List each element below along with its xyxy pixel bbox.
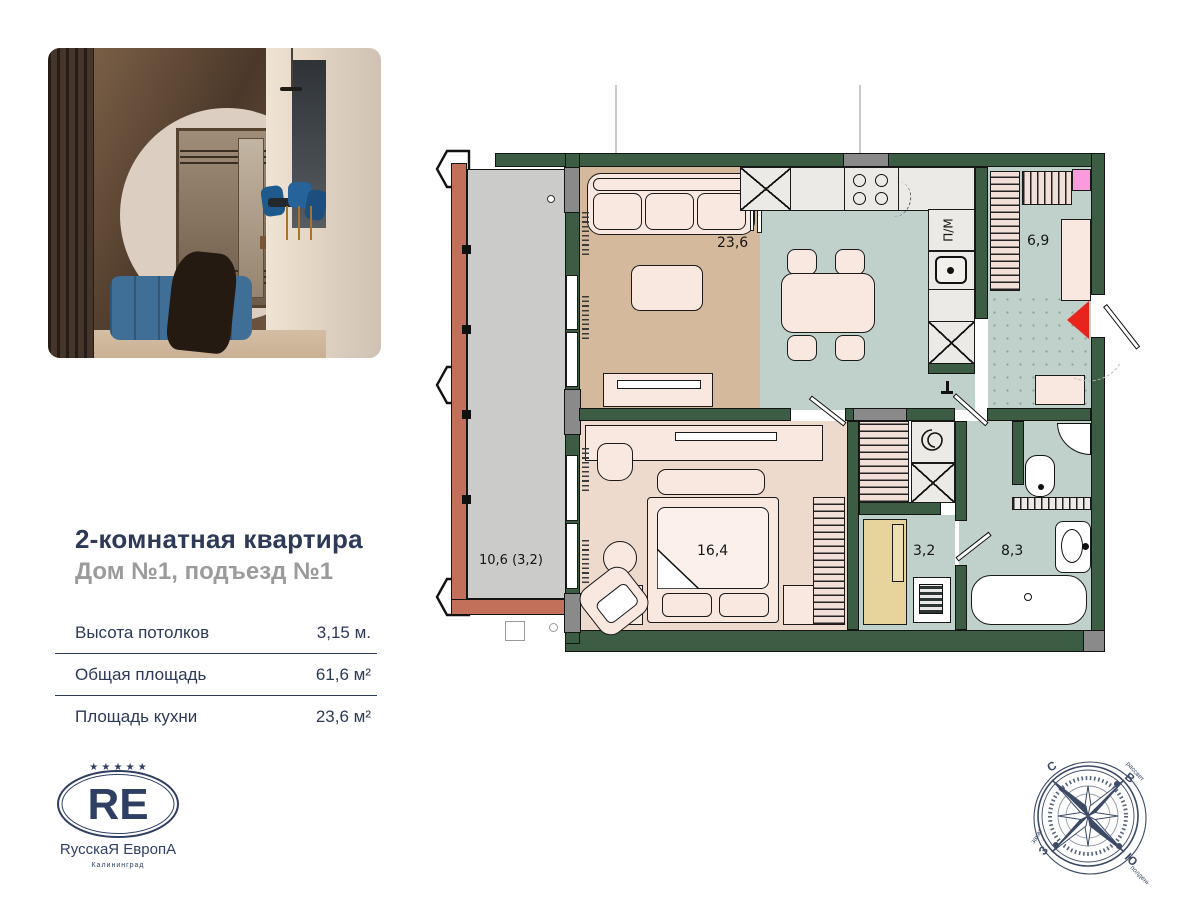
shoe-shelf-pink: [1072, 169, 1091, 191]
photo-wood-slats: [48, 48, 94, 358]
bathtub-drain: [1024, 593, 1032, 601]
spec-label: Высота потолков: [75, 623, 209, 643]
wall-laundry-top: [859, 502, 941, 515]
dining-chair: [787, 249, 817, 275]
dishwasher-label: П/М: [942, 218, 956, 241]
toilet-dot: [1038, 484, 1044, 490]
radiator: [582, 537, 589, 583]
room-area-laundry: 3,2: [913, 543, 935, 559]
wall-right-upper: [1091, 153, 1105, 295]
wall-laundry-right-lower: [955, 565, 967, 630]
vanity-sink: [1055, 521, 1091, 573]
bed-pillow: [662, 593, 712, 617]
balcony-door-panel: [566, 275, 578, 330]
spec-value: 61,6 м²: [316, 665, 371, 685]
wall-toilet-partition: [1012, 421, 1024, 485]
toilet: [1025, 455, 1055, 497]
kitchen-counter: [790, 167, 846, 211]
wall-stub: [928, 363, 975, 374]
photo-table-legs: [286, 206, 316, 240]
photo-pendant: [291, 48, 293, 88]
dining-chair: [787, 335, 817, 361]
coffee-table: [631, 265, 703, 311]
desk-chair: [597, 443, 633, 481]
spec-label: Общая площадь: [75, 665, 206, 685]
vent-shaft: [1083, 630, 1105, 652]
nightstand: [783, 585, 815, 625]
hall-console: [1061, 219, 1091, 301]
compass-noon: полдень: [1129, 864, 1152, 884]
loggia-floor: [467, 169, 567, 599]
vent-shaft: [853, 408, 907, 421]
sink-drain-dot: [947, 267, 954, 274]
dining-chair: [835, 249, 865, 275]
desk-tv: [675, 432, 777, 441]
pier-block: [564, 167, 580, 213]
tv-screen: [617, 380, 701, 389]
wardrobe-hangers: [1022, 171, 1072, 205]
dining-chair: [835, 335, 865, 361]
laundry-cabinet: [863, 519, 907, 625]
bed-headboard: [657, 469, 765, 495]
spec-row-ceiling: Высота потолков 3,15 м.: [55, 612, 377, 654]
glazing-tick: [462, 410, 471, 419]
wardrobe-hangers: [990, 171, 1020, 291]
water-tap-icon: [946, 381, 949, 393]
loggia-outer-wall-bottom: [451, 599, 567, 615]
sofa-cushion: [697, 193, 746, 230]
photo-lamp: [280, 87, 302, 91]
kitchen-cabinet-x: [740, 167, 792, 211]
wall-laundry-right-upper: [955, 421, 967, 521]
wall-bedroom-top: [579, 408, 791, 421]
floor-plan: 10,6 (3,2) 23,6: [435, 125, 1140, 700]
wall-bath-top: [987, 408, 1091, 421]
logo-name: RусскаЯ ЕвропА: [60, 841, 176, 858]
spec-row-kitchen-area: Площадь кухни 23,6 м²: [55, 696, 377, 737]
logo-city: Калининград: [91, 862, 144, 869]
spec-row-total-area: Общая площадь 61,6 м²: [55, 654, 377, 696]
kitchen-cabinet-x-small: [928, 321, 975, 365]
bedroom-window-panel: [566, 455, 578, 521]
blanket-fold: [657, 549, 699, 589]
page-subtitle: Дом №1, подъезд №1: [75, 558, 333, 586]
glazing-tick: [462, 495, 471, 504]
wall-top: [565, 153, 1105, 167]
leader-line: [615, 85, 617, 155]
interior-photo: [48, 48, 381, 358]
logo-monogram: RE: [87, 780, 148, 829]
radiator: [582, 293, 589, 339]
room-area-loggia: 10,6 (3,2): [479, 553, 543, 568]
sink-bowl: [1061, 529, 1083, 563]
dryer-machine: [913, 577, 951, 623]
bedroom-window-panel: [566, 523, 578, 589]
burner: [853, 174, 866, 187]
logo-stars: ★ ★ ★ ★ ★: [89, 762, 147, 773]
balcony-door-panel: [566, 332, 578, 387]
spiral-icon: [912, 422, 952, 460]
tv-stand: [603, 373, 713, 407]
dryer-grille: [919, 584, 943, 614]
leader-line: [859, 85, 861, 155]
corridor-cabinet-x: [911, 463, 955, 503]
dishwasher: П/М: [928, 209, 975, 251]
drain-dot: [549, 623, 558, 632]
burner: [853, 192, 866, 205]
sofa-cushion: [645, 193, 694, 230]
dining-table: [781, 273, 875, 333]
radiator: [582, 209, 589, 255]
glazing-tick: [462, 245, 471, 254]
sofa-cushion: [593, 193, 642, 230]
room-area-bathroom: 8,3: [1001, 543, 1023, 559]
spec-label: Площадь кухни: [75, 707, 197, 727]
vent-shaft: [843, 153, 889, 167]
photo-right-wall: [326, 48, 381, 358]
sink-tap-dot: [1082, 543, 1089, 550]
wall-top-left: [495, 153, 567, 167]
wall-kitchen-hall: [975, 167, 988, 319]
wall-right-lower: [1091, 337, 1105, 652]
bedroom-wardrobe: [813, 497, 845, 625]
room-area-living: 23,6: [717, 235, 748, 251]
glazing-tick: [462, 325, 471, 334]
bathtub: [971, 575, 1087, 625]
page-title: 2-комнатная квартира: [75, 524, 363, 555]
cabinet-inner-line: [892, 524, 904, 582]
corridor-closet: [859, 421, 909, 503]
brand-logo: ★ ★ ★ ★ ★ RE RусскаЯ ЕвропА Калининград: [40, 756, 230, 876]
spec-value: 3,15 м.: [317, 623, 371, 643]
armchair-seat: [594, 582, 640, 626]
kitchen-sink-cabinet: [928, 251, 975, 291]
photo-mirror-strip: [238, 138, 264, 298]
compass-rose: С В З Ю рассвет закат полдень: [1018, 744, 1158, 884]
spec-value: 23,6 м²: [316, 707, 371, 727]
room-area-hall: 6,9: [1027, 233, 1049, 249]
wall-bedroom-right: [847, 421, 859, 630]
drain-square: [505, 621, 525, 641]
toilet-counter: [1012, 497, 1091, 510]
sofa-back: [593, 178, 749, 191]
bed-pillow: [719, 593, 769, 617]
kitchen-counter: [928, 289, 975, 323]
room-area-bedroom: 16,4: [697, 543, 728, 559]
wall-bottom: [565, 630, 1105, 652]
hinge-dot: [547, 195, 555, 203]
radiator: [582, 445, 589, 491]
washing-machine: [911, 421, 955, 463]
loggia-outer-wall: [451, 163, 467, 615]
spec-table: Высота потолков 3,15 м. Общая площадь 61…: [55, 612, 377, 737]
